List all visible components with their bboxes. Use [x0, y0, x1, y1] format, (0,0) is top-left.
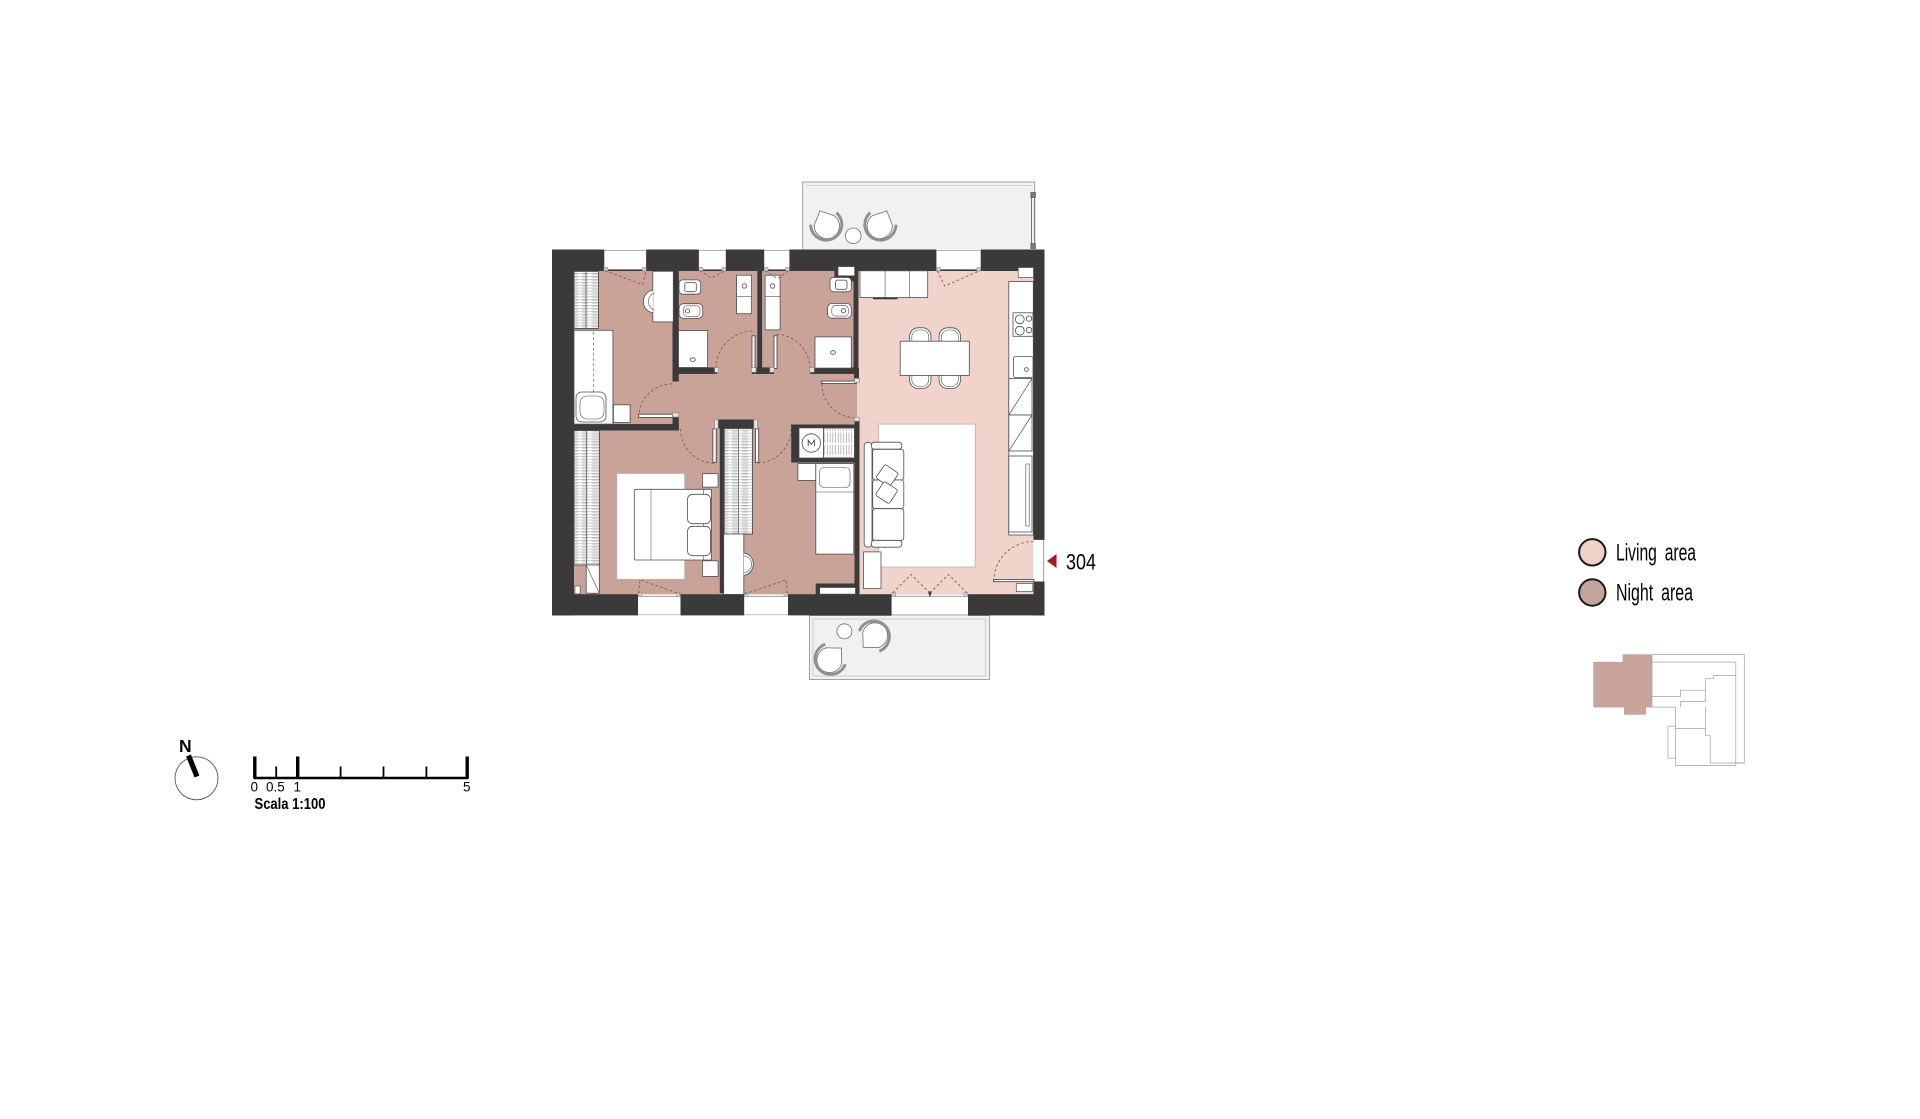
svg-text:1: 1	[294, 780, 302, 795]
svg-text:Living area: Living area	[1616, 540, 1696, 567]
svg-text:304: 304	[1066, 550, 1096, 575]
svg-text:N: N	[179, 736, 192, 756]
svg-text:Scala 1:100: Scala 1:100	[255, 796, 326, 813]
svg-text:0.5: 0.5	[266, 780, 285, 795]
svg-text:0: 0	[251, 780, 259, 795]
svg-text:5: 5	[463, 780, 471, 795]
svg-text:Night area: Night area	[1616, 580, 1693, 607]
